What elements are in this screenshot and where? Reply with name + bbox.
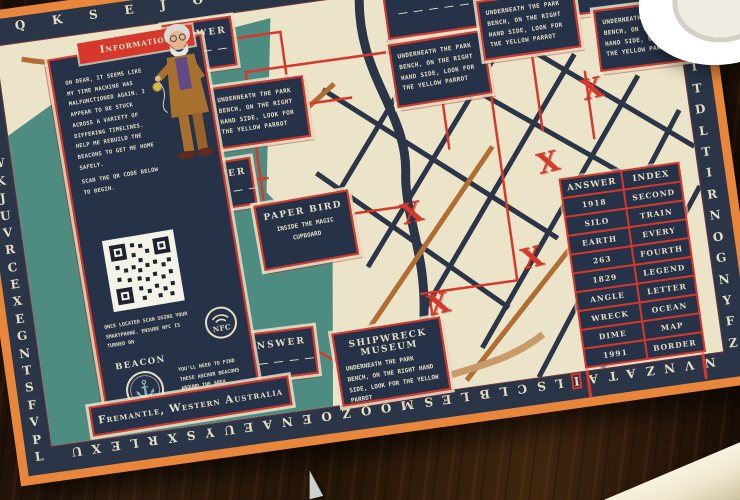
border-letter: B (479, 387, 491, 400)
border-letter: V (29, 416, 40, 429)
border-letter: R (706, 188, 718, 201)
border-letter: X (12, 295, 23, 308)
border-letter: V (684, 359, 695, 372)
border-letter: N (664, 361, 677, 374)
border-letter: Q (14, 18, 26, 31)
border-letter: T (607, 369, 618, 382)
qr-code[interactable] (102, 229, 185, 312)
border-letter: E (302, 412, 313, 425)
pencil-tip (303, 469, 323, 500)
border-letter: L (499, 385, 509, 398)
border-letter: O (712, 230, 724, 243)
border-letter: X (91, 442, 102, 455)
border-letter: V (2, 226, 13, 239)
border-letter: O (321, 409, 333, 422)
border-letter: C (517, 382, 528, 395)
border-letter: I (573, 375, 580, 388)
border-letter: Z (341, 407, 351, 420)
paper-roll (579, 430, 740, 500)
border-letter: T (701, 145, 712, 158)
border-letter: G (16, 329, 28, 342)
border-letter: F (27, 398, 37, 411)
border-letter: E (124, 3, 135, 16)
border-letter: L (460, 390, 470, 403)
border-letter: S (88, 8, 98, 21)
border-letter: I (706, 167, 713, 180)
border-letter: Z (645, 364, 655, 377)
border-letter: N (709, 209, 722, 222)
border-letter: J (0, 192, 6, 205)
border-letter: L (555, 377, 565, 390)
border-letter: D (694, 103, 706, 116)
border-letter: E (0, 140, 1, 153)
answer-blanks[interactable]: — — — — — (386, 0, 482, 20)
border-letter: U (71, 445, 83, 458)
border-letter: U (0, 209, 11, 222)
border-letter: O (360, 404, 372, 417)
border-letter: O (380, 401, 392, 414)
border-letter: Z (728, 336, 738, 349)
border-letter: M (400, 398, 415, 412)
border-letter: S (24, 381, 34, 394)
border-letter: T (22, 364, 33, 377)
border-letter: Y (205, 426, 215, 439)
border-letter: L (34, 450, 44, 463)
border-letter: F (725, 315, 735, 328)
border-letter: S (536, 379, 546, 392)
border-letter: C (7, 261, 18, 274)
border-letter: L (698, 124, 708, 137)
border-letter: S (423, 395, 433, 408)
border-letter: E (243, 421, 254, 434)
border-letter: T (692, 81, 703, 94)
border-letter: S (186, 429, 196, 442)
puzzle-map-sheet: QKSEJO NONIZEWKJUVRCEXEGNTSFVPL RNCEZITD… (0, 0, 740, 486)
border-letter: W (0, 157, 5, 171)
border-letter: R (147, 434, 159, 447)
border-letter: N (718, 272, 731, 285)
border-letter: P (31, 433, 42, 446)
border-letter: O (192, 0, 204, 7)
border-letter: A (262, 418, 273, 431)
border-letter: J (159, 0, 166, 11)
border-letter: G (715, 251, 727, 264)
nfc-instruction-text: Once located scan using your smartphone.… (104, 309, 199, 352)
nfc-icon: NFC (200, 302, 241, 343)
border-letter: E (442, 393, 453, 406)
border-letter: E (14, 312, 25, 325)
clue-text: Underneath the park bench, on the right … (390, 32, 490, 103)
border-letter: A (626, 367, 637, 380)
border-letter: K (51, 13, 63, 26)
location-box-shipwreck-museum: Shipwreck Museum Underneath the park ben… (331, 316, 451, 406)
border-letter: E (110, 439, 121, 452)
tabletop-scene: QKSEJO NONIZEWKJUVRCEXEGNTSFVPL RNCEZITD… (0, 0, 740, 500)
border-letter: N (281, 415, 294, 428)
border-letter: U (223, 423, 235, 436)
border-letter: X (167, 431, 178, 444)
border-letter: R (4, 243, 16, 256)
border-letter: K (0, 174, 6, 187)
border-letter: Y (722, 294, 732, 307)
border-letter: L (129, 437, 139, 450)
border-letter: E (10, 278, 21, 291)
border-letter: N (18, 347, 31, 360)
